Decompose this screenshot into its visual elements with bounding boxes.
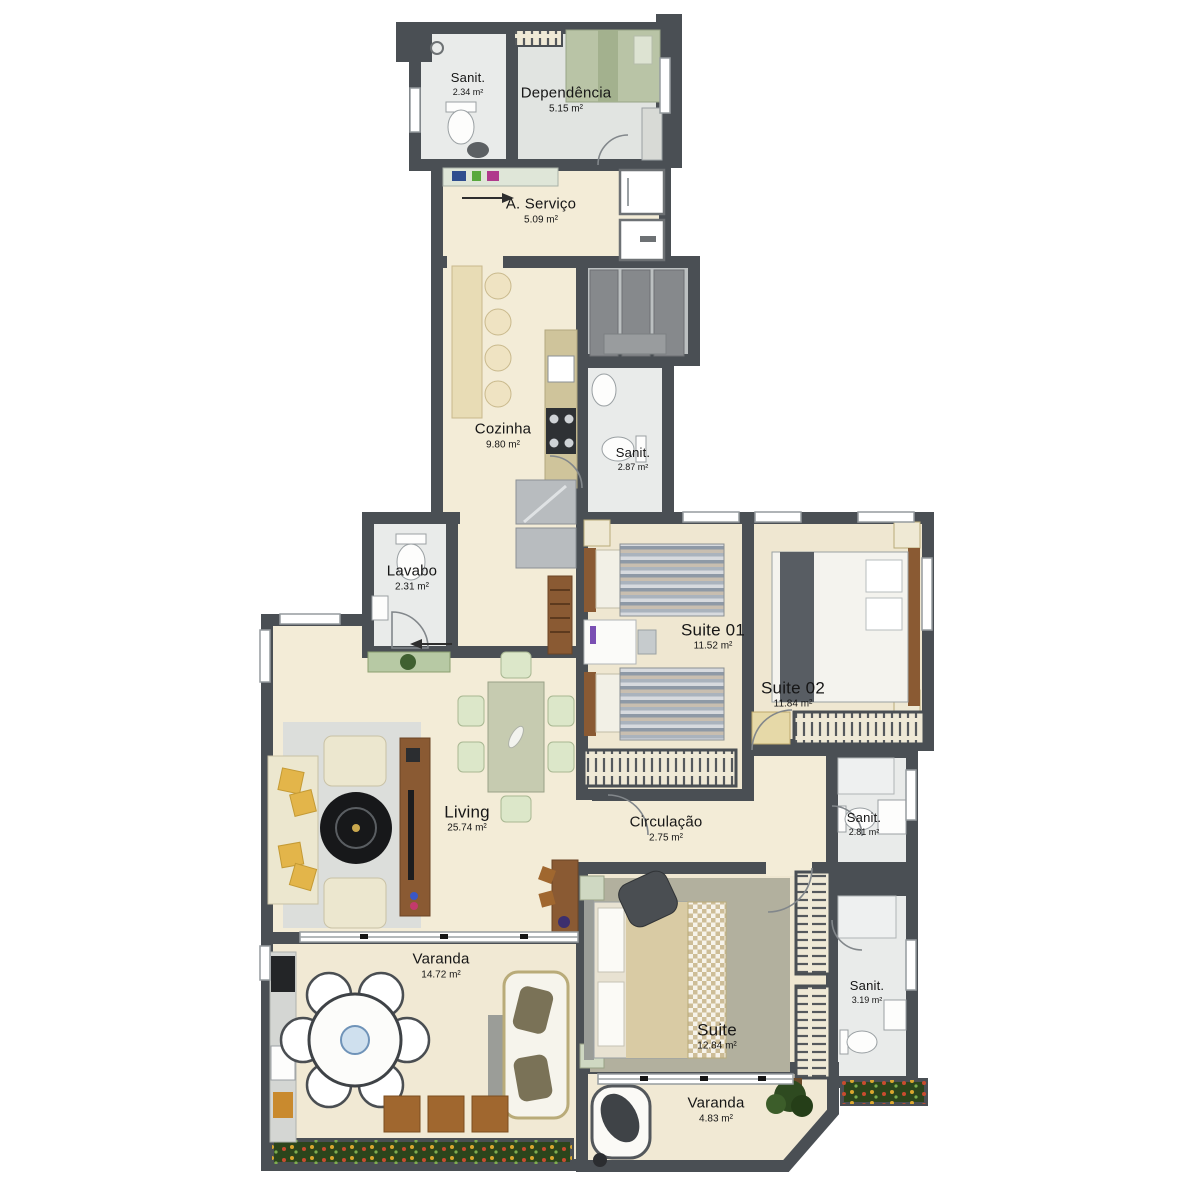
laundry-item <box>487 171 499 181</box>
nightstand <box>894 522 920 548</box>
window <box>906 770 916 820</box>
window <box>922 558 932 630</box>
sink-icon <box>884 1000 906 1030</box>
pillow <box>278 768 304 794</box>
table-center <box>341 1026 369 1054</box>
bed-headboard <box>584 548 596 612</box>
burner <box>550 415 559 424</box>
closet-bench <box>604 334 666 354</box>
kitchen-sink <box>548 356 574 382</box>
device-dot <box>410 892 418 900</box>
window <box>755 512 801 522</box>
pillow <box>866 598 902 630</box>
lamp <box>273 1092 293 1118</box>
sink-icon <box>467 142 489 158</box>
washer-icon <box>620 170 664 214</box>
laundry-item <box>472 171 481 181</box>
burner <box>550 439 559 448</box>
wall-stub <box>826 862 918 896</box>
sink-icon <box>372 596 388 620</box>
pillow <box>866 560 902 592</box>
dining-chair <box>458 742 484 772</box>
window <box>260 630 270 682</box>
stool <box>485 309 511 335</box>
toilet-icon <box>847 1031 877 1053</box>
sliding-door-living-varanda <box>300 932 578 942</box>
stool <box>485 345 511 371</box>
wardrobe <box>796 986 830 1078</box>
bed-runner <box>688 902 726 1058</box>
flower-planter-blooms <box>272 1140 572 1164</box>
wall-stub <box>396 22 432 62</box>
burner <box>565 439 574 448</box>
stove-icon <box>546 408 576 454</box>
side-table <box>593 1153 607 1167</box>
pillow <box>290 790 317 817</box>
toilet-icon <box>602 437 634 461</box>
pillow <box>598 982 624 1046</box>
dining-chair <box>501 796 531 822</box>
toilet-tank <box>636 436 646 462</box>
toilet-tank <box>396 534 426 544</box>
wardrobe <box>584 750 736 786</box>
stool <box>384 1096 420 1132</box>
wardrobe <box>514 30 562 46</box>
stool <box>472 1096 508 1132</box>
single-bed <box>620 668 724 740</box>
plant-icon <box>791 1095 813 1117</box>
stool <box>428 1096 464 1132</box>
dryer-handle <box>640 236 656 242</box>
bed-throw <box>598 30 618 102</box>
window <box>280 614 340 624</box>
shelf-rack <box>548 576 572 654</box>
wardrobe <box>796 872 830 974</box>
single-bed <box>620 544 724 616</box>
toilet-icon <box>448 110 474 144</box>
window <box>906 940 916 990</box>
laundry-item <box>452 171 466 181</box>
pillow <box>596 550 620 608</box>
armchair <box>324 736 386 786</box>
toilet-icon <box>397 544 425 580</box>
fridge-icon <box>516 528 576 568</box>
hall-closet-furniture <box>590 270 684 356</box>
armchair <box>324 878 386 928</box>
dining-chair <box>501 652 531 678</box>
dining-chair <box>548 742 574 772</box>
grill-icon <box>271 956 295 992</box>
dining-chair <box>458 696 484 726</box>
decor-bowl <box>558 916 570 928</box>
nightstand <box>580 876 604 900</box>
opening <box>566 800 592 862</box>
window <box>858 512 914 522</box>
window <box>410 88 420 132</box>
hall-furniture <box>548 576 572 654</box>
pillow <box>596 674 620 732</box>
plant-icon <box>400 654 416 670</box>
desk-item <box>590 626 596 644</box>
window <box>660 58 670 113</box>
window <box>683 512 739 522</box>
bed-headboard <box>584 900 594 1060</box>
floor-plan: Sanit.2.34 m² Dependência5.15 m² A. Serv… <box>0 0 1183 1183</box>
bed-throw <box>780 552 814 702</box>
plant-icon <box>766 1094 786 1114</box>
coffee-table-center <box>352 824 360 832</box>
sink-icon <box>592 374 616 406</box>
device-dot <box>410 902 418 910</box>
desk-chair <box>638 630 656 654</box>
sliding-door-suite-varanda <box>598 1074 793 1084</box>
bed-headboard <box>584 672 596 736</box>
dining-chair <box>548 696 574 726</box>
kitchen-counter <box>452 266 482 418</box>
shower-box <box>838 758 894 794</box>
cabinet <box>642 108 662 160</box>
sink-icon <box>878 800 906 834</box>
floor-plan-drawing <box>0 0 1183 1183</box>
speaker <box>406 748 420 762</box>
window <box>260 946 270 980</box>
tv-console <box>400 738 430 916</box>
bed-headboard <box>908 548 920 706</box>
stool <box>485 381 511 407</box>
wardrobe <box>794 712 924 744</box>
burner <box>565 415 574 424</box>
pillow <box>598 908 624 972</box>
shower-box <box>838 896 896 938</box>
stool <box>485 273 511 299</box>
tv-icon <box>408 790 414 880</box>
pillow <box>278 842 303 867</box>
nightstand <box>584 520 610 546</box>
pillow <box>634 36 652 64</box>
flower-planter-blooms <box>842 1080 926 1104</box>
